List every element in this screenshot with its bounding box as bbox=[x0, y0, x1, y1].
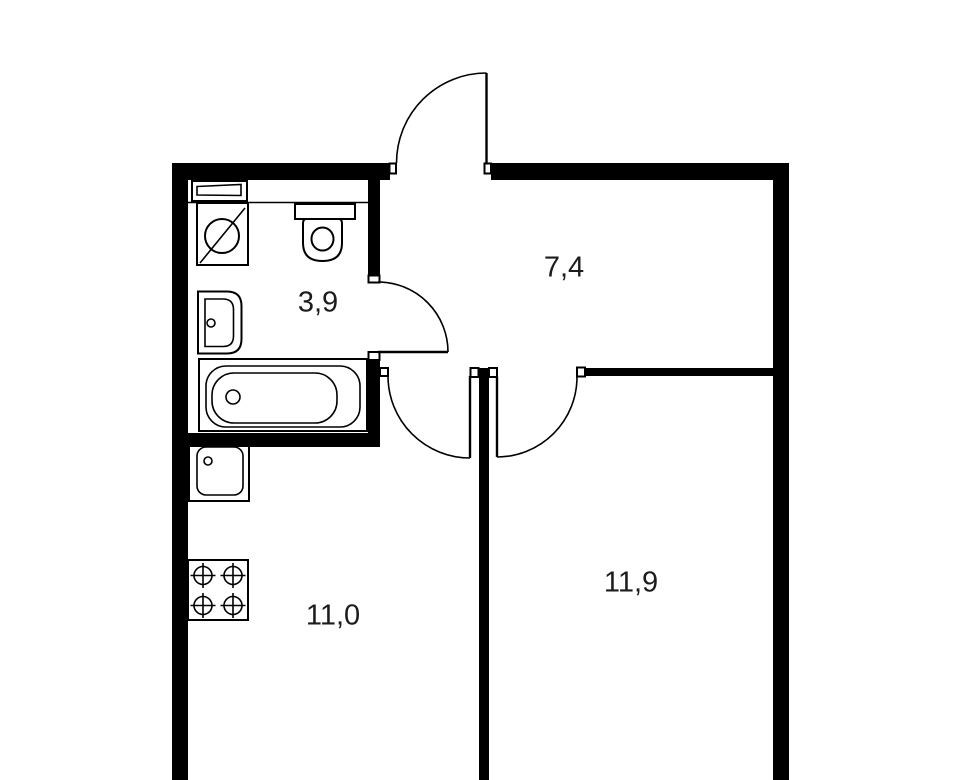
wall-bathroom-bottom bbox=[188, 433, 380, 447]
jamb-room-right bbox=[577, 368, 585, 377]
kitchen-area-label: 11,0 bbox=[306, 600, 360, 633]
jamb-entrance-right bbox=[485, 164, 492, 174]
jamb-kitchen-right bbox=[471, 368, 479, 377]
wall-right bbox=[773, 163, 789, 780]
jamb-entrance-left bbox=[390, 164, 397, 174]
bathroom-door-swing-arc bbox=[378, 282, 448, 352]
toilet-bowl bbox=[303, 219, 342, 261]
kitchen-sink-basin bbox=[197, 447, 243, 495]
wall-hall-room-partition bbox=[585, 368, 773, 376]
stove-burner-icon bbox=[191, 593, 216, 618]
wall-left bbox=[172, 163, 188, 780]
floorplan-page: 3,9 7,4 11,0 11,9 bbox=[0, 0, 960, 780]
shelf-icon bbox=[197, 185, 241, 196]
bathtub-drain-icon bbox=[226, 390, 240, 404]
kitchen-door-swing-arc bbox=[388, 376, 470, 458]
stove-burner-icon bbox=[221, 563, 246, 588]
wall-mid-cap bbox=[479, 368, 489, 377]
wash-basin-inner bbox=[205, 299, 234, 347]
wall-kitchen-room bbox=[479, 377, 489, 780]
wall-top-right bbox=[491, 163, 789, 180]
bathtub-basin bbox=[212, 373, 337, 423]
jamb-bathroom-top bbox=[369, 276, 380, 283]
stove-burner-icon bbox=[221, 593, 246, 618]
kitchen-sink-drain-icon bbox=[204, 457, 212, 465]
wall-bathroom-right-upper bbox=[368, 180, 380, 275]
room-door-swing-arc bbox=[497, 377, 577, 457]
bathroom-area-label: 3,9 bbox=[298, 287, 338, 320]
jamb-kitchen-left bbox=[380, 368, 388, 376]
stove-burner-icon bbox=[191, 563, 216, 588]
toilet-tank bbox=[295, 204, 355, 219]
wash-basin-faucet-icon bbox=[207, 319, 215, 327]
jamb-room-left bbox=[489, 368, 497, 377]
living-room-area-label: 11,9 bbox=[604, 567, 658, 600]
wall-top-left bbox=[172, 163, 390, 180]
hallway-area-label: 7,4 bbox=[544, 252, 584, 285]
jamb-bathroom-bottom bbox=[369, 352, 380, 360]
toilet-seat bbox=[312, 228, 334, 251]
floorplan-drawing bbox=[0, 0, 960, 780]
entrance-door-swing-arc bbox=[397, 73, 487, 163]
